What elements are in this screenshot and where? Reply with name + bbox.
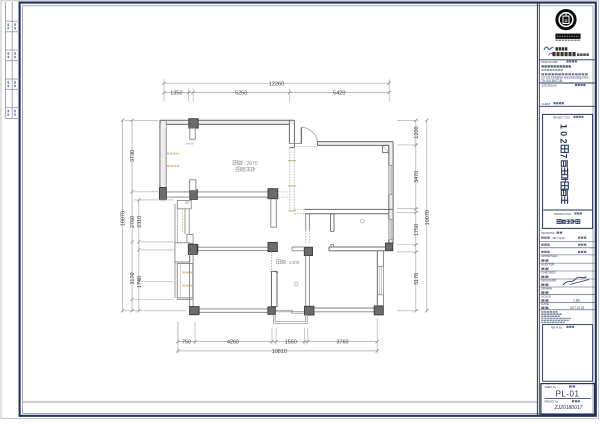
svg-text:DATE: DATE bbox=[541, 302, 549, 306]
svg-text:750: 750 bbox=[182, 340, 191, 346]
svg-text::: : bbox=[286, 260, 287, 265]
svg-text:1: 1 bbox=[558, 124, 568, 129]
svg-text:2017.10.29: 2017.10.29 bbox=[570, 306, 584, 310]
svg-text:3470: 3470 bbox=[414, 171, 420, 183]
svg-text:7: 7 bbox=[558, 153, 568, 158]
svg-text:PROJECT TITLE: PROJECT TITLE bbox=[553, 115, 570, 119]
svg-text:DESIGNER: DESIGNER bbox=[541, 278, 556, 282]
svg-text:REVISIONS: REVISIONS bbox=[541, 231, 554, 235]
svg-text:3170: 3170 bbox=[414, 273, 420, 285]
svg-text:10070: 10070 bbox=[121, 211, 127, 226]
svg-text:SCALE: SCALE bbox=[541, 294, 551, 298]
svg-text:1750: 1750 bbox=[414, 224, 420, 236]
svg-text:1350: 1350 bbox=[170, 91, 182, 97]
svg-text:5250: 5250 bbox=[235, 91, 247, 97]
svg-text:1200: 1200 bbox=[414, 126, 420, 138]
svg-text:DRAWING TITLE: DRAWING TITLE bbox=[554, 212, 571, 216]
svg-text:2670: 2670 bbox=[247, 161, 258, 167]
svg-text:CLIENT: CLIENT bbox=[542, 102, 551, 106]
svg-text:10810: 10810 bbox=[272, 349, 287, 355]
svg-text:DRAWN: DRAWN bbox=[541, 286, 552, 290]
svg-text::: : bbox=[244, 161, 245, 166]
svg-text:1740: 1740 bbox=[137, 276, 143, 288]
svg-text:TEL:0511-85017188: TEL:0511-85017188 bbox=[541, 79, 562, 83]
svg-text:APPROVED: APPROVED bbox=[541, 254, 557, 258]
svg-text:2400: 2400 bbox=[289, 260, 300, 266]
svg-text:3760: 3760 bbox=[336, 340, 348, 346]
svg-text:CHECKED: CHECKED bbox=[541, 271, 555, 275]
svg-text:DESIGN FIRM: DESIGN FIRM bbox=[542, 60, 558, 64]
svg-text:ZJ20180017: ZJ20180017 bbox=[554, 405, 583, 411]
svg-text:2017.10.29: 2017.10.29 bbox=[553, 236, 565, 240]
svg-text:3170: 3170 bbox=[130, 272, 136, 284]
svg-text:2310: 2310 bbox=[137, 216, 143, 228]
svg-text:PROJECT No.: PROJECT No. bbox=[545, 400, 559, 404]
svg-text:3730: 3730 bbox=[130, 150, 136, 162]
svg-text:10070: 10070 bbox=[425, 210, 431, 225]
svg-text:PL-01: PL-01 bbox=[556, 389, 580, 398]
svg-text:2: 2 bbox=[558, 139, 568, 144]
svg-text:4260: 4260 bbox=[227, 340, 239, 346]
svg-text:1560: 1560 bbox=[285, 340, 297, 346]
svg-text:1:80: 1:80 bbox=[573, 299, 580, 303]
svg-text:5420: 5420 bbox=[333, 91, 345, 97]
svg-text:12260: 12260 bbox=[269, 81, 284, 87]
svg-text:AUDITOR: AUDITOR bbox=[541, 263, 554, 267]
svg-text:0: 0 bbox=[558, 131, 568, 136]
svg-text:SITE DESIGN: SITE DESIGN bbox=[542, 84, 557, 88]
svg-text:2760: 2760 bbox=[130, 216, 136, 228]
svg-text:REF PLAN: REF PLAN bbox=[551, 325, 562, 329]
